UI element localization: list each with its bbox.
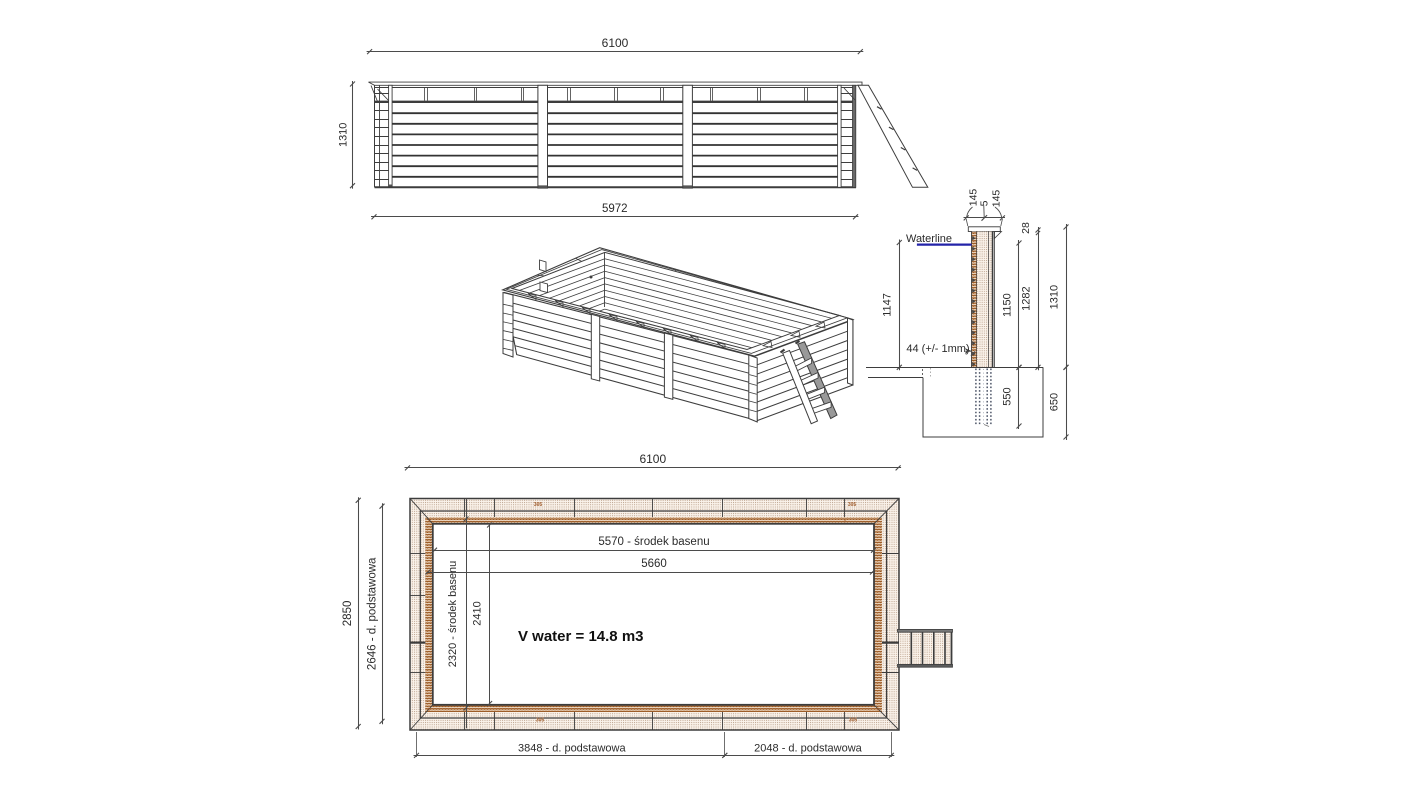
svg-text:2646 - d. podstawowa: 2646 - d. podstawowa [366,557,378,670]
svg-text:305: 305 [534,502,543,508]
svg-text:145: 145 [991,190,1003,208]
svg-text:305: 305 [849,718,858,724]
svg-text:V water = 14.8 m3: V water = 14.8 m3 [518,628,644,645]
svg-text:305: 305 [536,718,545,724]
svg-text:3848 - d. podstawowa: 3848 - d. podstawowa [518,743,627,755]
svg-text:2850: 2850 [342,601,354,627]
svg-text:1310: 1310 [1048,285,1060,309]
svg-text:305: 305 [848,502,857,508]
svg-text:550: 550 [1001,387,1013,405]
svg-text:5972: 5972 [602,203,628,215]
svg-text:1282: 1282 [1020,286,1032,310]
svg-text:5: 5 [979,200,991,206]
svg-text:1310: 1310 [338,123,350,147]
svg-text:1150: 1150 [1001,293,1013,317]
svg-text:6100: 6100 [602,36,629,50]
svg-text:5570 - środek basenu: 5570 - środek basenu [598,536,709,548]
svg-text:650: 650 [1048,393,1060,411]
svg-text:2410: 2410 [471,601,483,625]
svg-text:28: 28 [1020,222,1032,234]
svg-text:Waterline: Waterline [906,233,952,245]
svg-text:6100: 6100 [639,452,666,466]
svg-text:2048 - d. podstawowa: 2048 - d. podstawowa [754,743,863,755]
svg-text:5660: 5660 [641,558,667,570]
svg-text:1147: 1147 [882,293,894,317]
svg-text:44 (+/- 1mm): 44 (+/- 1mm) [906,343,969,355]
svg-text:2320 - środek basenu: 2320 - środek basenu [447,561,459,667]
